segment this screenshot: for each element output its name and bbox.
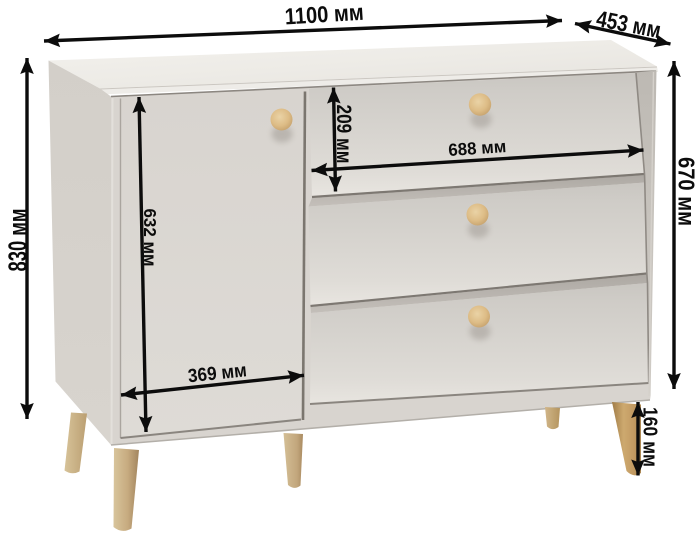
svg-text:830 мм: 830 мм <box>3 209 33 272</box>
svg-text:160 мм: 160 мм <box>639 407 661 467</box>
svg-text:670 мм: 670 мм <box>674 157 700 226</box>
svg-text:688 мм: 688 мм <box>448 136 507 160</box>
svg-text:1100 мм: 1100 мм <box>284 0 364 30</box>
svg-text:632 мм: 632 мм <box>140 209 160 267</box>
svg-text:453 мм: 453 мм <box>594 5 663 43</box>
svg-text:209 мм: 209 мм <box>332 105 355 164</box>
